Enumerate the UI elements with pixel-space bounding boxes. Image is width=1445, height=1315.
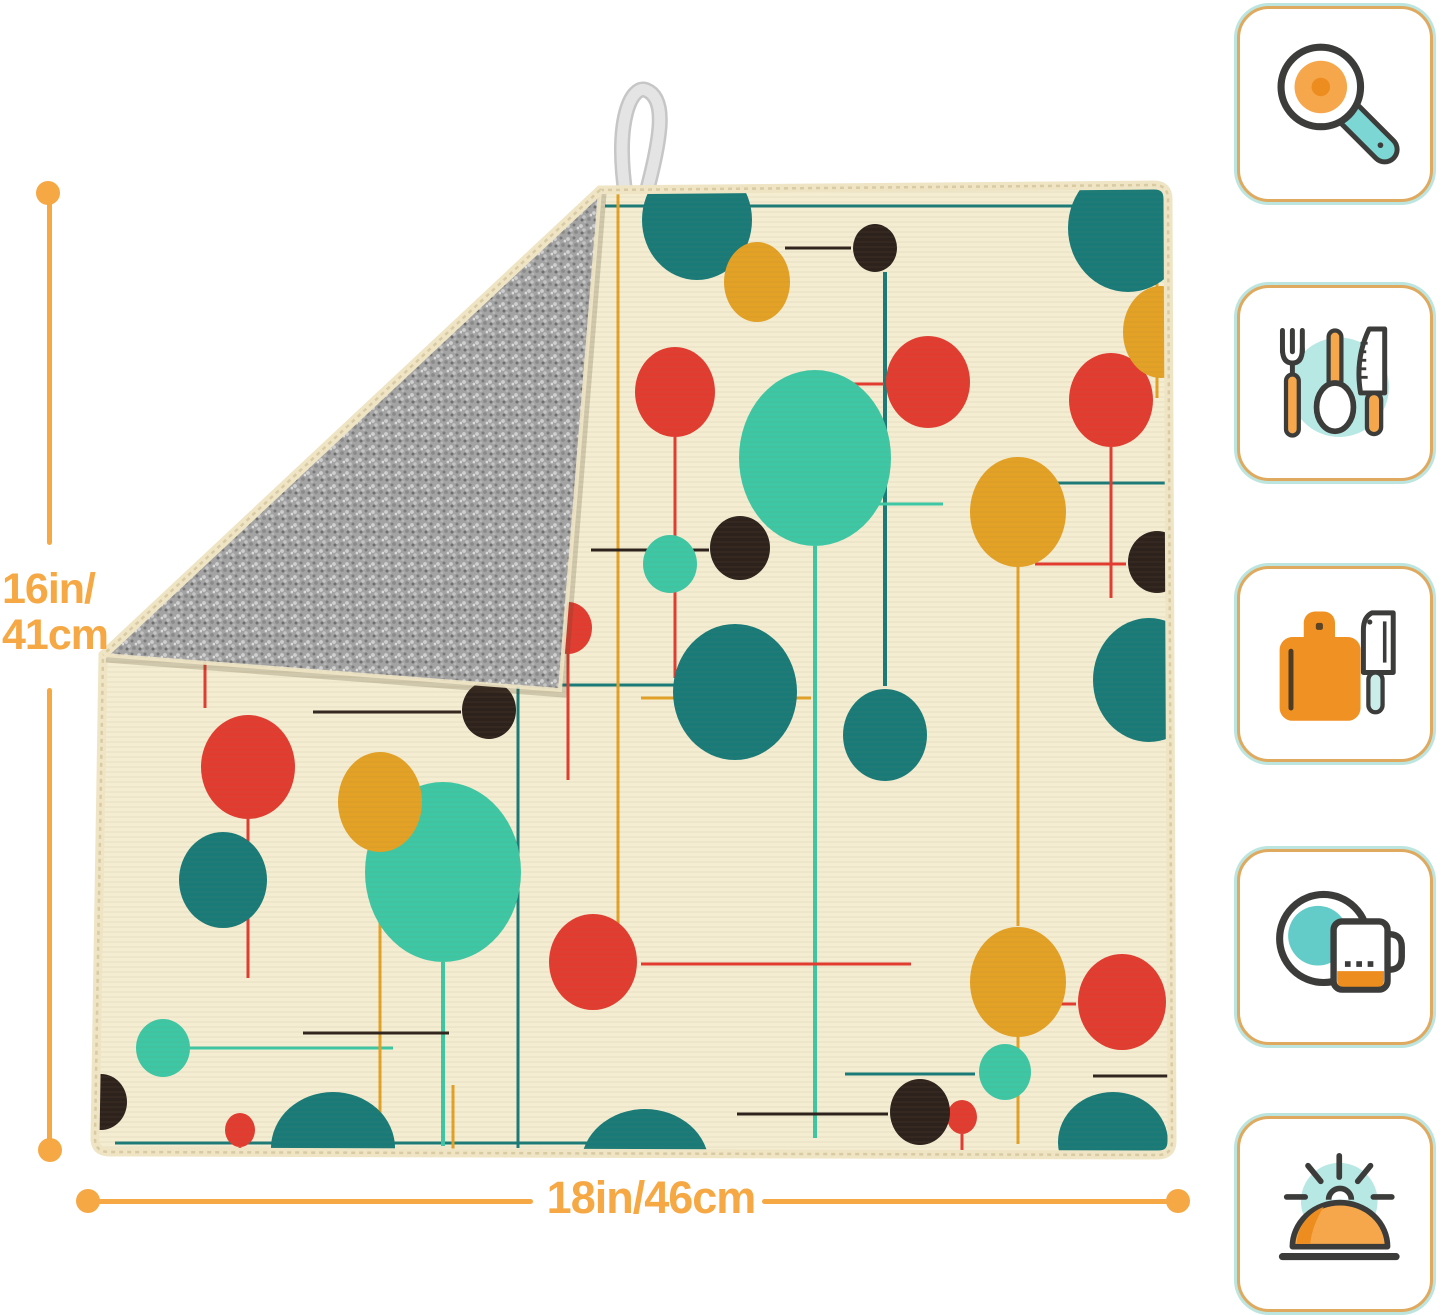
pattern-dot [163, 425, 247, 519]
dimension-endpoint-dot [38, 1138, 62, 1162]
height-dimension-line [47, 688, 52, 1150]
feature-card-dishes [1237, 849, 1433, 1045]
hanging-loop [622, 90, 660, 198]
frying-pan-icon [1264, 33, 1406, 175]
dimension-endpoint-dot [1166, 1189, 1190, 1213]
feature-card-serving [1237, 1116, 1433, 1312]
feature-card-utensils [1237, 285, 1433, 481]
cutting-board-icon [1264, 593, 1406, 735]
height-label-line2: 41cm [2, 611, 108, 659]
height-dimension-line [47, 193, 52, 545]
width-dimension-line [88, 1199, 533, 1204]
utensils-icon [1264, 312, 1406, 454]
width-label: 18in/46cm [536, 1172, 766, 1224]
dimension-endpoint-dot [76, 1189, 100, 1213]
height-label: 16in/41cm [2, 566, 120, 659]
dimension-endpoint-dot [36, 181, 60, 205]
height-label-line1: 16in/ [2, 565, 95, 613]
drying-mat [85, 80, 1190, 1245]
serving-cloche-icon [1264, 1143, 1406, 1285]
plate-and-mug-icon [1264, 876, 1406, 1018]
feature-card-chopping [1237, 566, 1433, 762]
feature-card-cooking [1237, 6, 1433, 202]
width-dimension-line [762, 1199, 1178, 1204]
product-image: 16in/41cm 18in/46cm [0, 0, 1445, 1315]
